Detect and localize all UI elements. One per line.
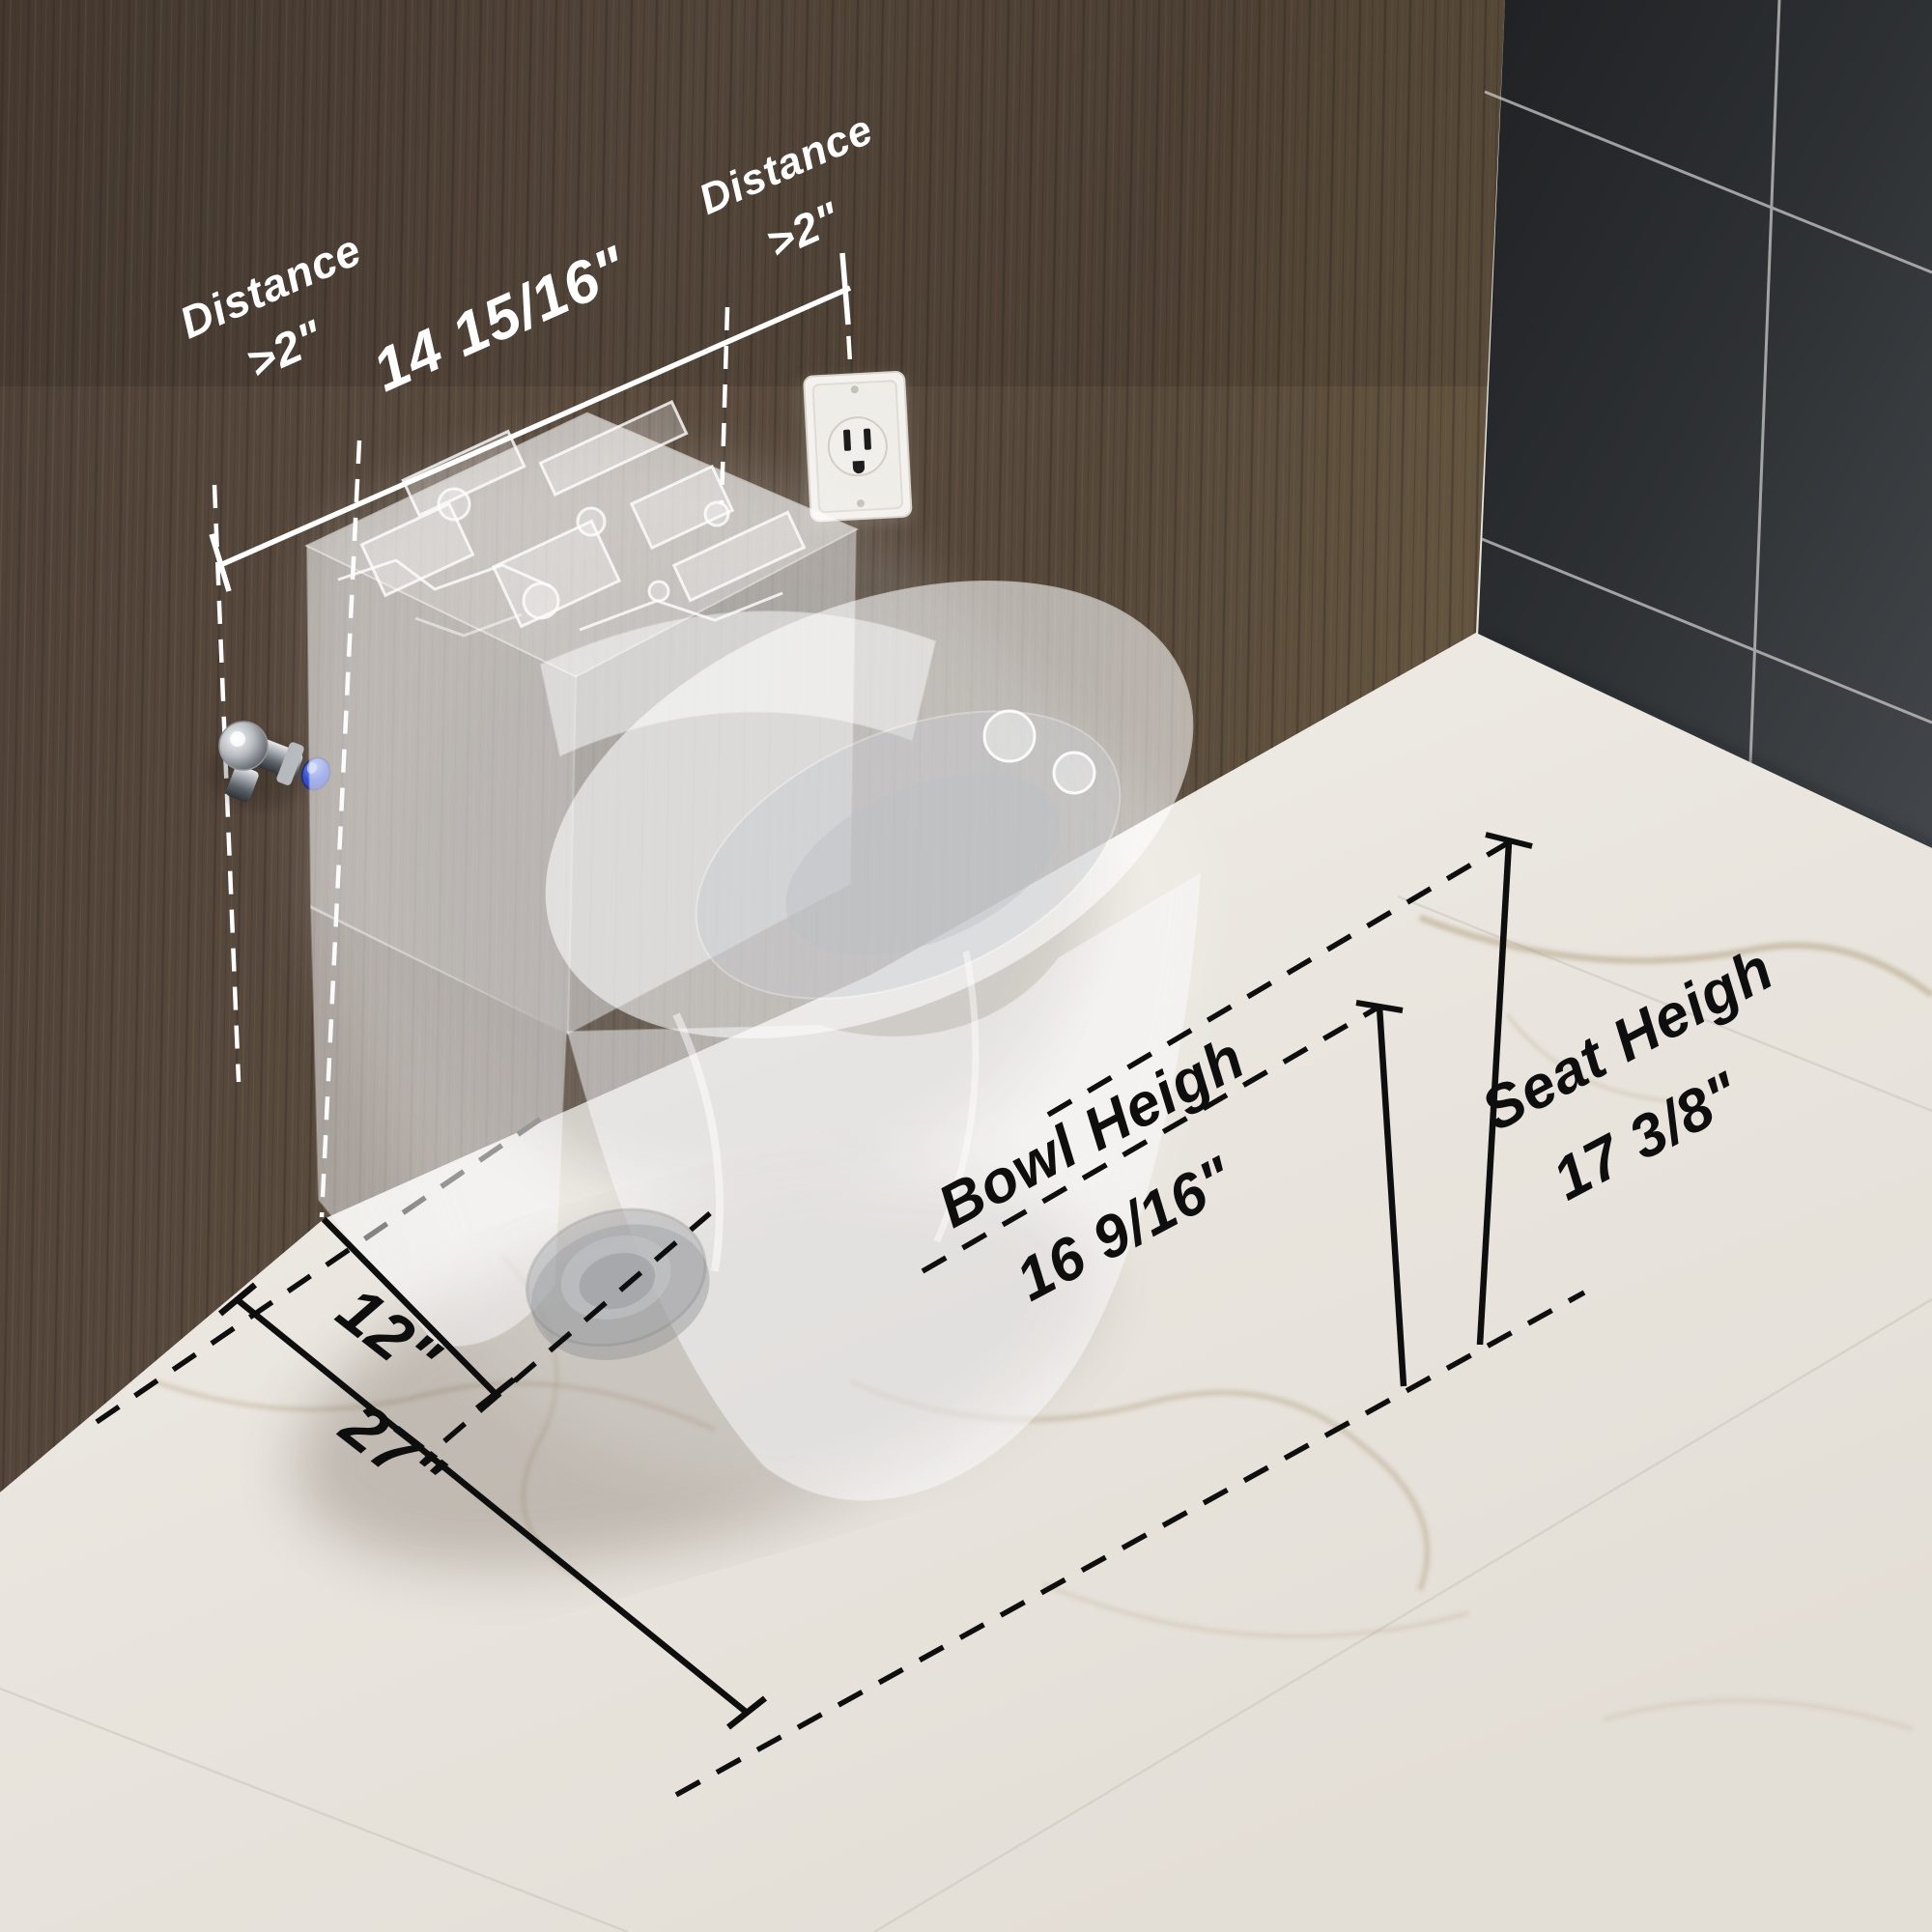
seat-button-1: [984, 711, 1035, 761]
bathroom-dimension-diagram: Distance >2" 14 15/16" Distance >2" 12" …: [0, 0, 1932, 1932]
seat-button-2: [1054, 753, 1094, 793]
scene-graphics: [0, 0, 1932, 1932]
